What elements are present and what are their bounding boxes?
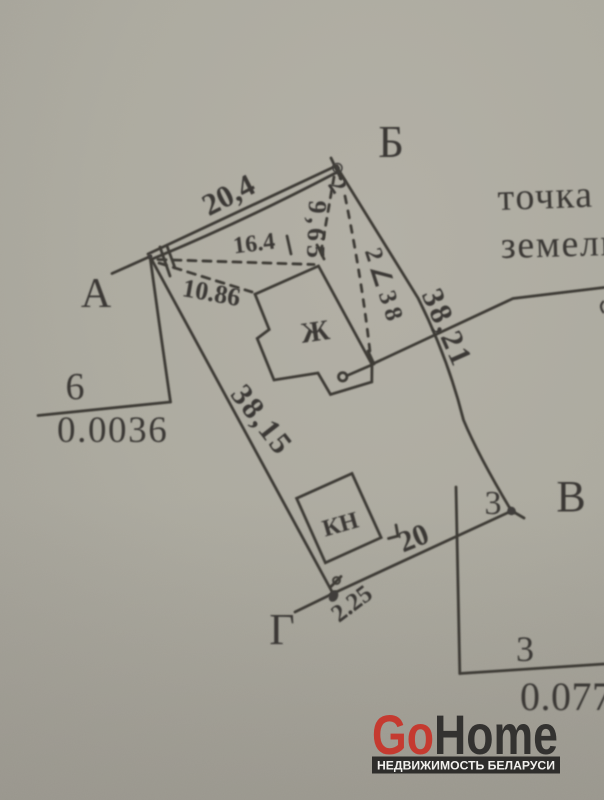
svg-text:В: В <box>556 472 585 521</box>
svg-text:НЕДВИЖИМОСТЬ БЕЛАРУСИ: НЕДВИЖИМОСТЬ БЕЛАРУСИ <box>377 761 555 773</box>
svg-text:А: А <box>81 271 112 317</box>
svg-text:земель: земель <box>500 222 604 267</box>
svg-text:Г: Г <box>269 605 294 654</box>
svg-text:6: 6 <box>66 366 85 408</box>
svg-text:Б: Б <box>378 117 404 167</box>
svg-text:Ж: Ж <box>299 314 332 350</box>
svg-text:3: 3 <box>485 485 502 522</box>
svg-text:точка: точка <box>497 174 594 219</box>
svg-text:9,65: 9,65 <box>301 200 332 262</box>
svg-text:3: 3 <box>516 629 534 669</box>
svg-text:16.4: 16.4 <box>232 229 277 260</box>
svg-text:0.0036: 0.0036 <box>57 410 168 451</box>
